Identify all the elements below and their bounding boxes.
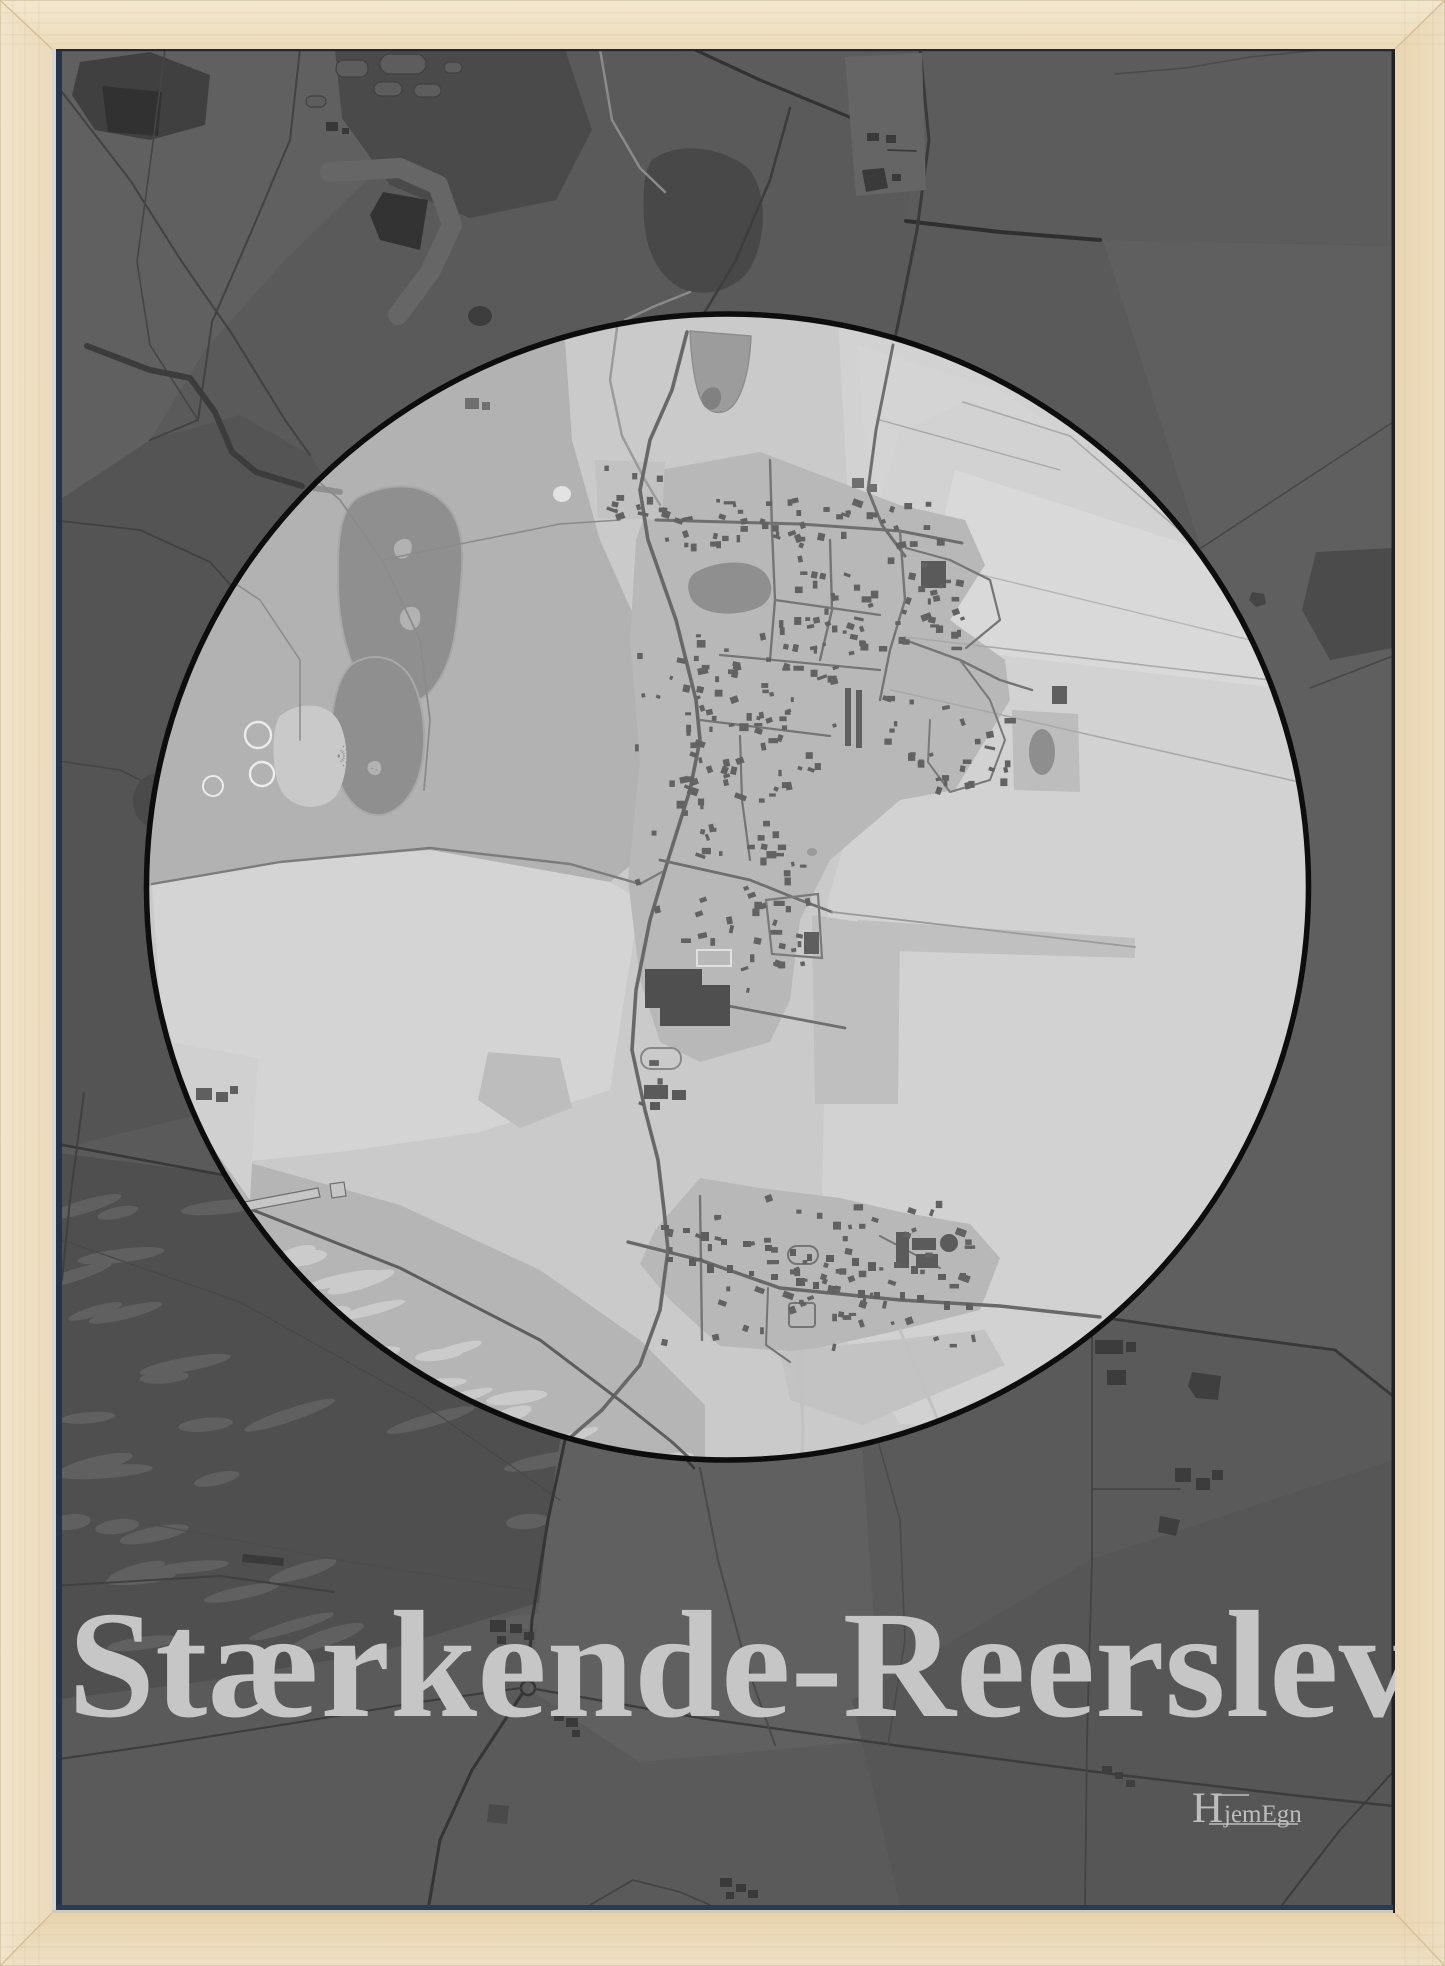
svg-text:H: H	[1192, 1785, 1223, 1832]
svg-text:Stærkende-Reerslev: Stærkende-Reerslev	[68, 1581, 1417, 1750]
